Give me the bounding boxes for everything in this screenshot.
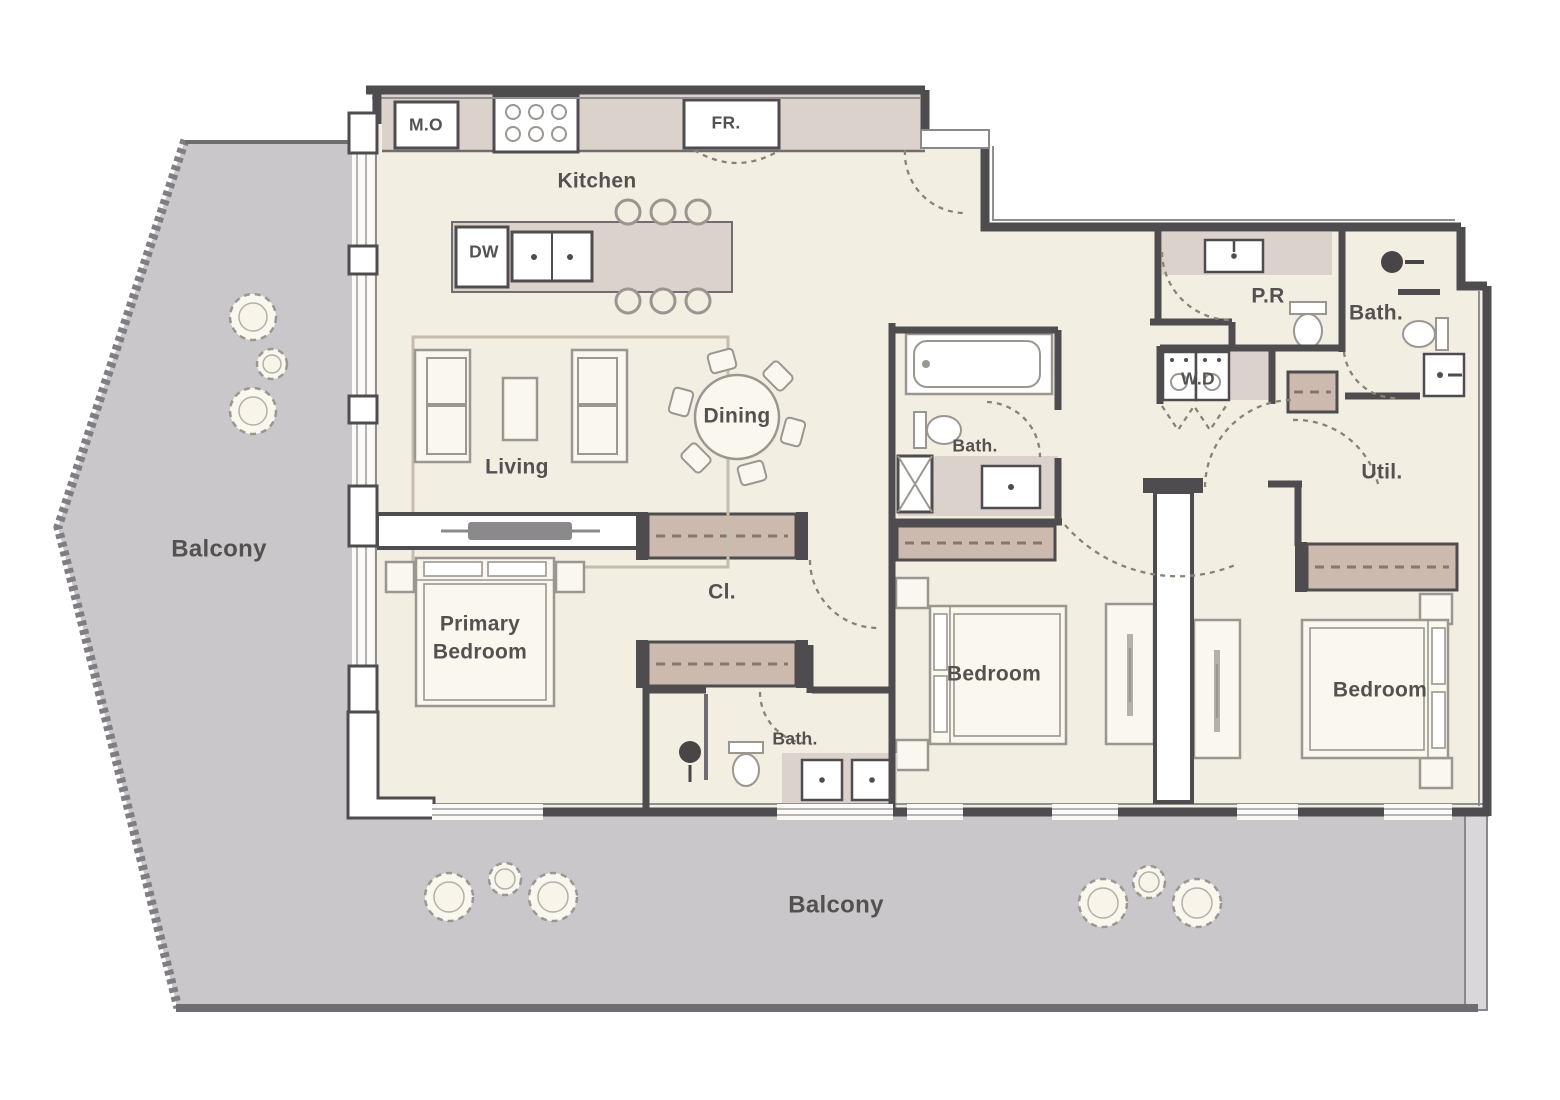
bedroom-right-wardrobe — [1307, 544, 1457, 590]
toilet — [1403, 318, 1448, 350]
kitchen-counter — [382, 94, 925, 150]
label-bedroom-middle: Bedroom — [947, 663, 1041, 686]
island-sink — [512, 232, 592, 281]
bedroom-middle-wardrobe — [897, 526, 1055, 560]
hall-cabinet — [1288, 372, 1337, 412]
label-bath-middle: Bath. — [952, 436, 997, 456]
closet-wardrobe-south — [648, 642, 796, 686]
label-kitchen: Kitchen — [557, 170, 636, 193]
label-utility: Util. — [1361, 461, 1402, 484]
closet-wardrobe-north — [648, 514, 796, 558]
label-washer-dryer: W.D — [1181, 369, 1215, 389]
label-bath-top-right: Bath. — [1349, 302, 1403, 325]
coffee-table — [503, 378, 537, 440]
label-bedroom-right: Bedroom — [1333, 679, 1427, 702]
label-primary-bedroom-line1: Primary — [440, 613, 520, 636]
nightstand — [386, 562, 414, 592]
vanity-sink — [982, 466, 1040, 508]
entry-threshold — [921, 130, 989, 148]
label-microwave-oven-tag: M.O — [409, 115, 443, 135]
floor-plan: KitchenM.OFR.DWDiningLivingBalconyBalcon… — [0, 0, 1560, 1100]
label-dining: Dining — [703, 405, 770, 428]
label-dishwasher-tag: DW — [469, 242, 499, 262]
pr-sink — [1205, 240, 1263, 272]
media-wall — [377, 514, 643, 548]
sofa-left — [415, 350, 470, 462]
nightstand — [1420, 758, 1452, 788]
label-bath-primary: Bath. — [772, 729, 817, 749]
label-powder-room: P.R — [1251, 285, 1284, 308]
label-closet: Cl. — [708, 581, 736, 604]
sliding-wardrobe-right — [1194, 620, 1240, 758]
label-balcony-left: Balcony — [171, 535, 267, 562]
label-fridge-tag: FR. — [711, 113, 740, 133]
label-primary-bedroom-line2: Bedroom — [433, 641, 527, 664]
label-living: Living — [485, 456, 549, 479]
floor-plan-drawing: KitchenM.OFR.DWDiningLivingBalconyBalcon… — [0, 0, 1560, 1100]
sink — [1424, 354, 1464, 396]
bathtub — [906, 334, 1052, 394]
shaft — [898, 456, 932, 512]
nightstand — [556, 562, 584, 592]
nightstand — [896, 578, 928, 608]
bedroom-divider-wall — [1155, 492, 1192, 802]
sliding-wardrobe-left — [1106, 604, 1154, 744]
tv-console — [468, 522, 572, 540]
nightstand — [896, 740, 928, 770]
sofa-right — [572, 350, 627, 462]
balcony-right-railing — [1465, 812, 1487, 1010]
laundry-counter — [1225, 350, 1269, 400]
label-balcony-bottom: Balcony — [788, 891, 884, 918]
stove — [494, 96, 578, 152]
